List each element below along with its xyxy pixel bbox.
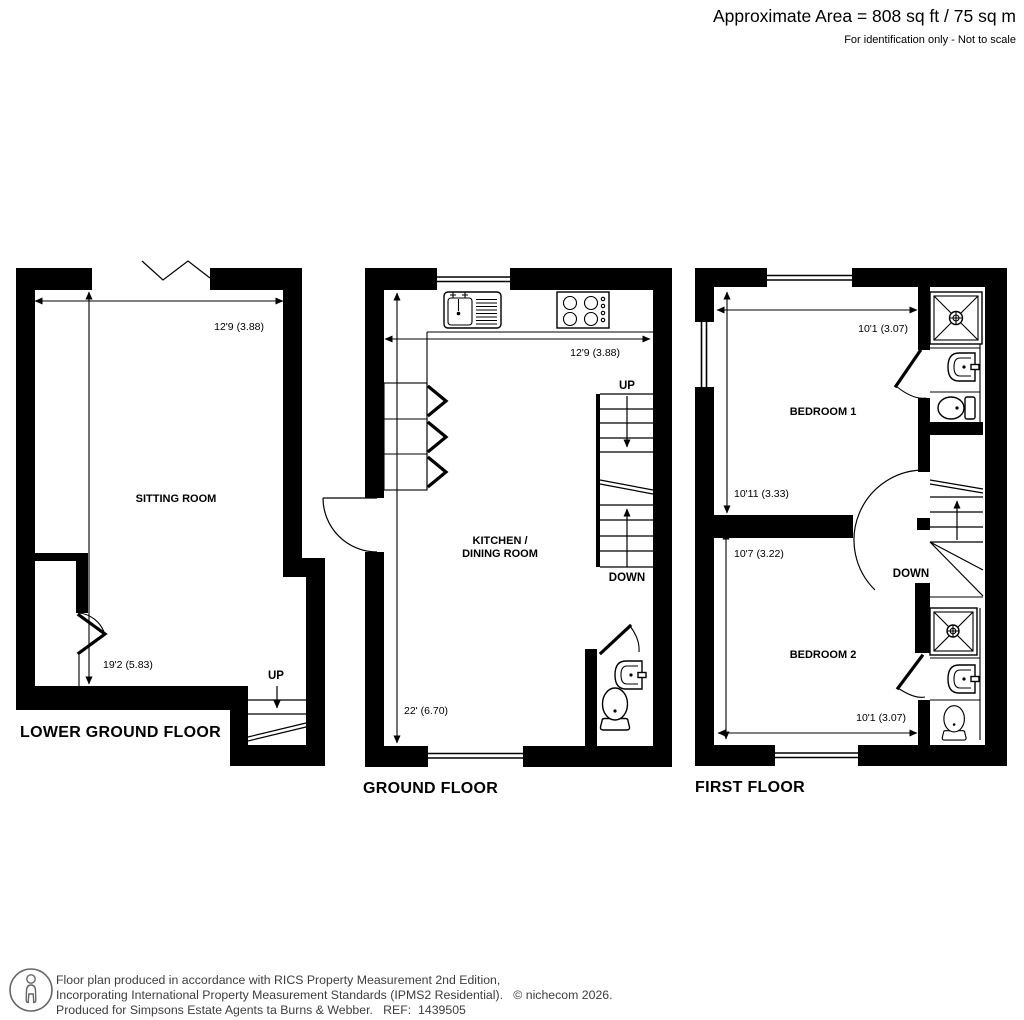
floor-plan-lower-ground: UP 12'9 (3.88) 19'2 (5.83) SITTING ROOM … bbox=[16, 261, 325, 766]
floor-plan-first: DOWN bbox=[695, 268, 1007, 796]
bedroom2-label: BEDROOM 2 bbox=[790, 649, 857, 661]
approximate-area-text: Approximate Area = 808 sq ft / 75 sq m bbox=[713, 6, 1016, 26]
ensuite2-door bbox=[898, 656, 925, 697]
bedroom1-depth-dim: 10'11 (3.33) bbox=[734, 488, 789, 500]
shower-icon bbox=[930, 608, 977, 655]
first-floor-title: FIRST FLOOR bbox=[695, 779, 805, 796]
kitchen-label-line2: DINING ROOM bbox=[462, 548, 538, 560]
lgf-width-dim: 12'9 (3.88) bbox=[214, 321, 264, 333]
identification-note-text: For identification only - Not to scale bbox=[844, 34, 1016, 46]
wc-door bbox=[601, 626, 639, 653]
lgf-cupboard-door bbox=[79, 613, 105, 686]
kitchen-label-line1: KITCHEN / bbox=[473, 535, 528, 547]
hob-icon bbox=[557, 292, 609, 328]
cupboard-door-icon bbox=[429, 387, 446, 415]
floorplan-canvas: Approximate Area = 808 sq ft / 75 sq m F… bbox=[0, 0, 1024, 1020]
ensuite1-door bbox=[896, 351, 926, 398]
gf-width-dim: 12'9 (3.88) bbox=[570, 347, 620, 359]
ff-down-label: DOWN bbox=[893, 568, 929, 580]
gf-dimensions: 12'9 (3.88) 22' (6.70) bbox=[385, 293, 650, 743]
cupboard-door-icon bbox=[429, 423, 446, 451]
lgf-stairs: UP bbox=[248, 670, 306, 741]
floor-plan-ground: UP DOWN 12'9 (3.88) 22' (6.70) KITCHEN /… bbox=[323, 268, 672, 797]
bedroom2-depth-dim: 10'7 (3.22) bbox=[734, 548, 784, 560]
sitting-room-label: SITTING ROOM bbox=[136, 493, 217, 505]
lower-ground-floor-title: LOWER GROUND FLOOR bbox=[20, 724, 221, 741]
ensuite1-toilet-icon bbox=[938, 397, 975, 419]
bedroom1-label: BEDROOM 1 bbox=[790, 406, 857, 418]
gf-depth-dim: 22' (6.70) bbox=[404, 705, 448, 717]
kitchen-sink-icon bbox=[444, 292, 501, 329]
ground-floor-title: GROUND FLOOR bbox=[363, 780, 498, 797]
footer-line2: Incorporating International Property Mea… bbox=[56, 988, 613, 1002]
ensuite2-toilet-icon bbox=[942, 706, 966, 740]
bedroom2-width-dim: 10'1 (3.07) bbox=[856, 712, 906, 724]
ensuite2 bbox=[898, 608, 980, 740]
entrance-door bbox=[323, 498, 377, 552]
gf-stairs: UP DOWN bbox=[596, 380, 653, 584]
lgf-dimensions: 12'9 (3.88) 19'2 (5.83) bbox=[35, 292, 283, 684]
lgf-up-label: UP bbox=[268, 670, 284, 682]
bedroom1-width-dim: 10'1 (3.07) bbox=[858, 323, 908, 335]
cupboard-door-icon bbox=[429, 458, 446, 486]
ensuite2-basin-icon bbox=[948, 665, 979, 693]
footer: Floor plan produced in accordance with R… bbox=[10, 969, 613, 1017]
shower-icon bbox=[930, 292, 982, 344]
wc-basin-icon bbox=[615, 661, 646, 689]
gf-windows bbox=[428, 277, 523, 758]
gf-walls bbox=[365, 268, 672, 767]
ensuite1 bbox=[896, 292, 982, 422]
footer-line3: Produced for Simpsons Estate Agents ta B… bbox=[56, 1003, 466, 1017]
wall-break-icon bbox=[142, 261, 210, 280]
header: Approximate Area = 808 sq ft / 75 sq m F… bbox=[713, 6, 1016, 46]
gf-down-label: DOWN bbox=[609, 572, 645, 584]
footer-line1: Floor plan produced in accordance with R… bbox=[56, 973, 500, 987]
gf-up-label: UP bbox=[619, 380, 635, 392]
ensuite1-basin-icon bbox=[948, 353, 979, 381]
lgf-depth-dim: 19'2 (5.83) bbox=[103, 659, 153, 671]
wc-toilet-icon bbox=[600, 688, 629, 730]
lgf-walls bbox=[16, 268, 325, 766]
person-scale-icon bbox=[10, 969, 52, 1011]
ff-stairs: DOWN bbox=[893, 480, 983, 597]
